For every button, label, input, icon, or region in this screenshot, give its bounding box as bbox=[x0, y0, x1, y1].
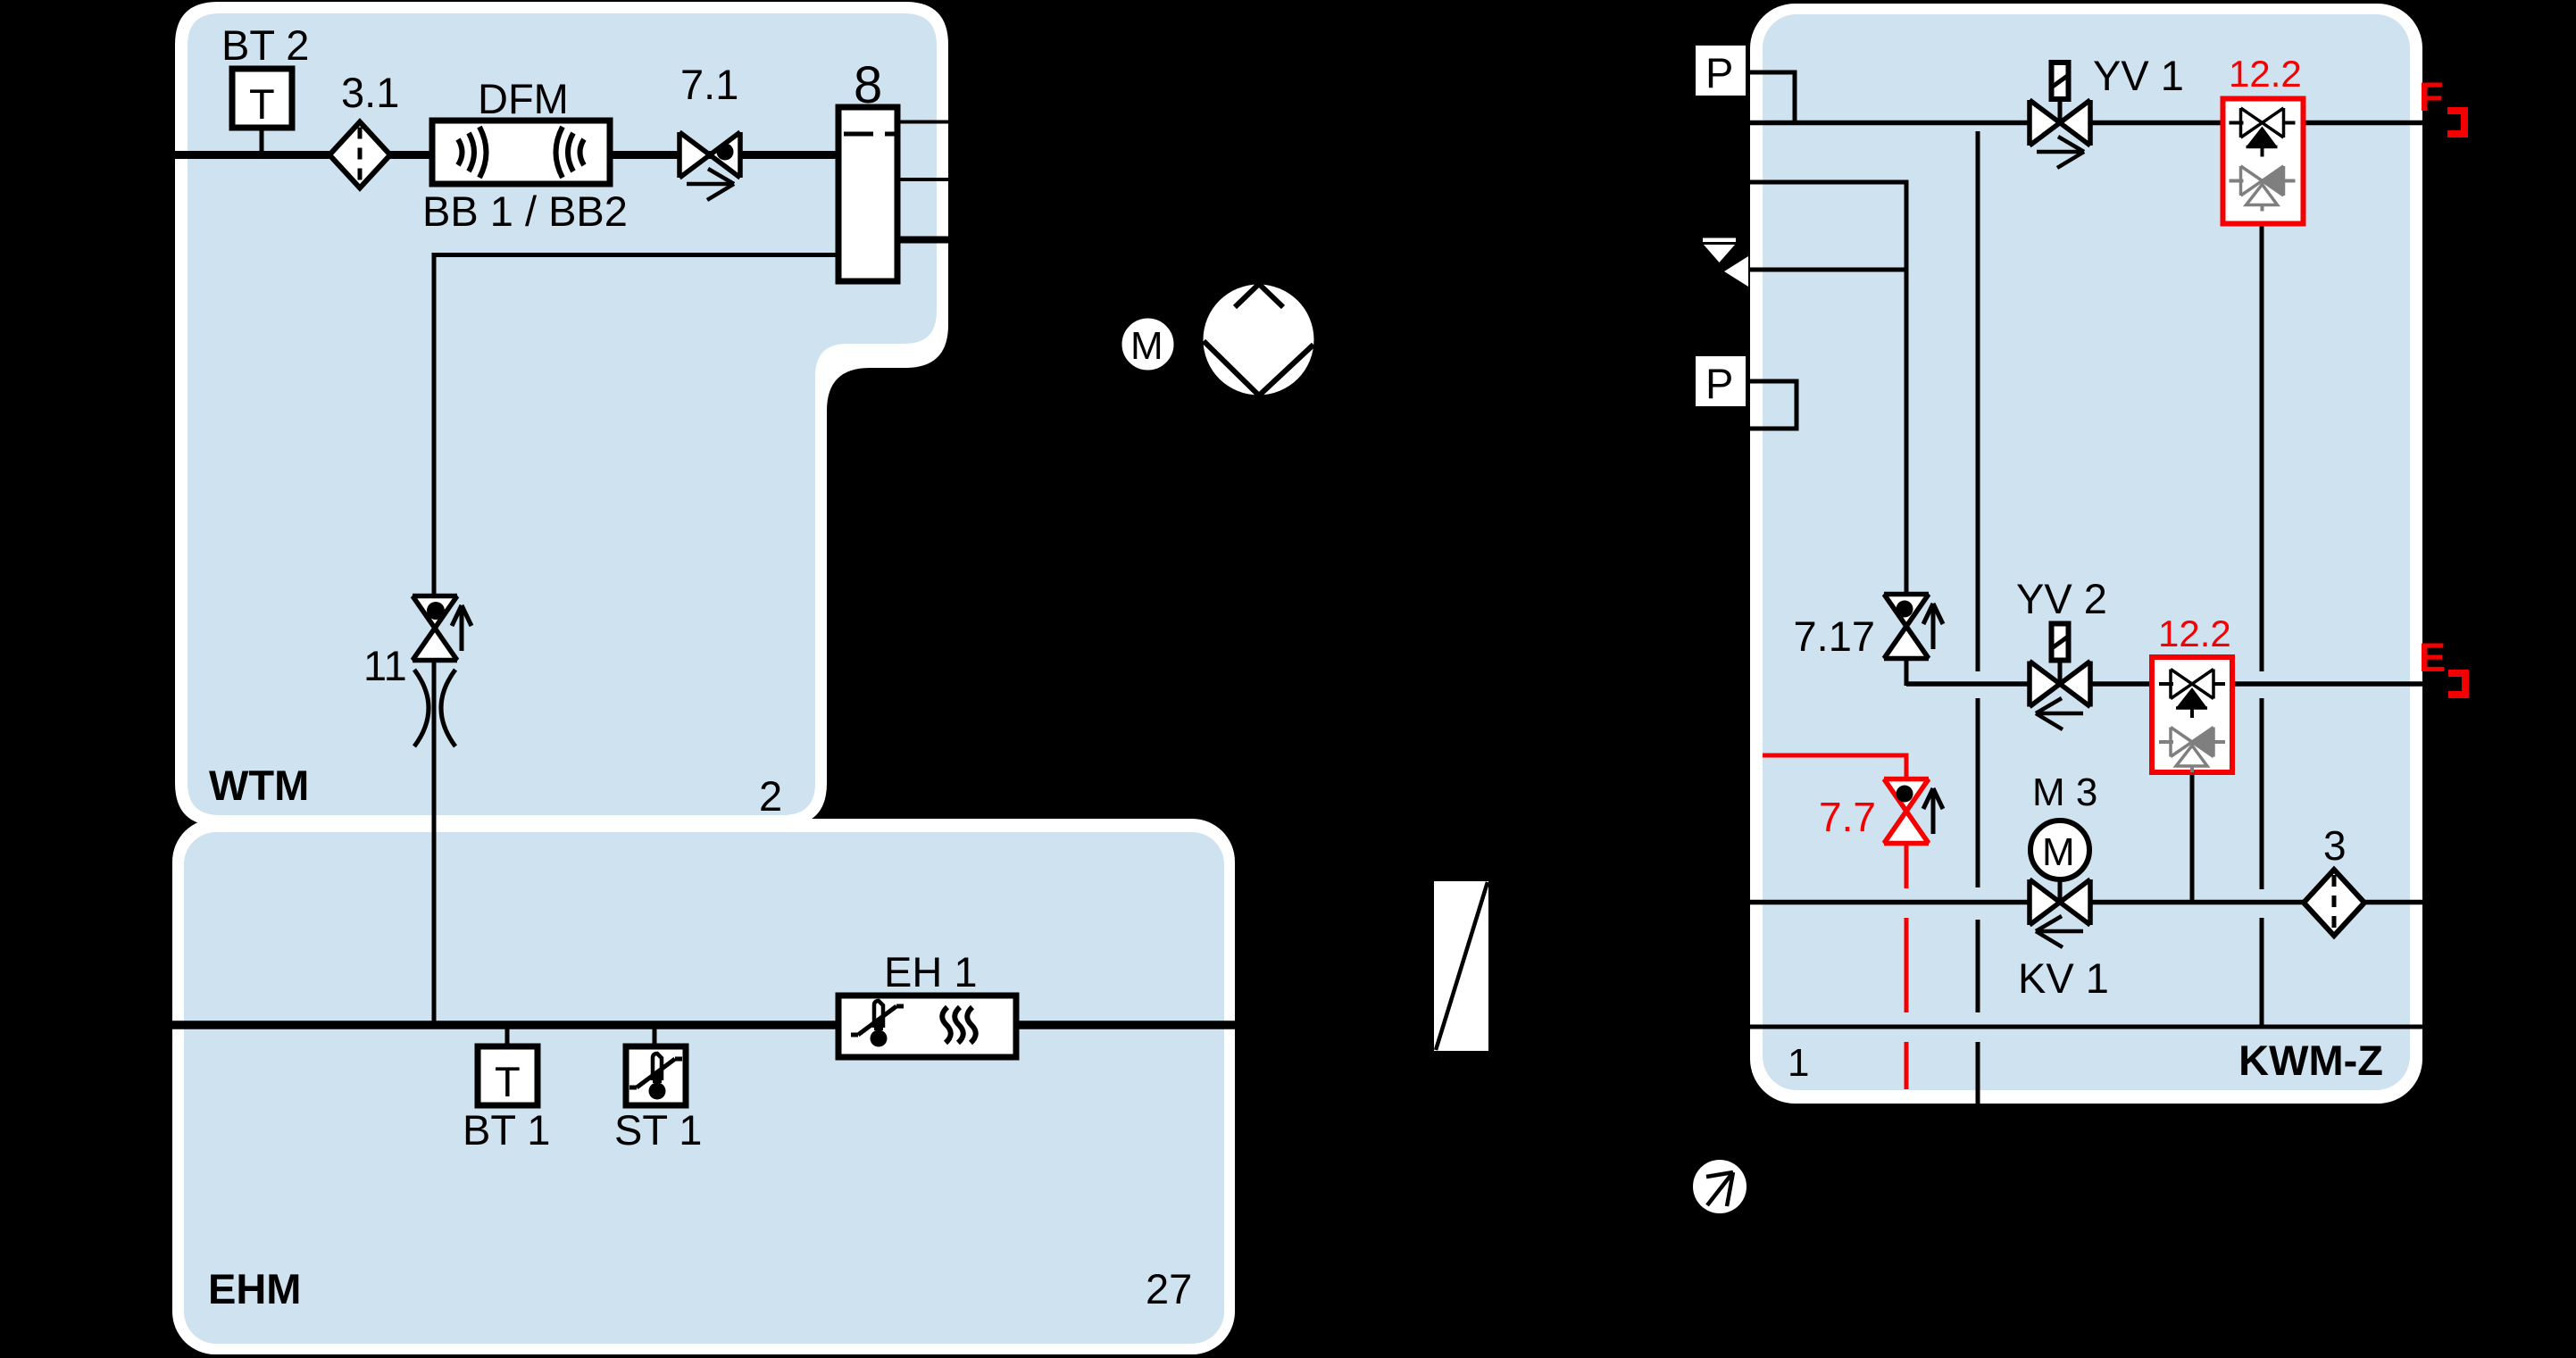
svg-text:1: 1 bbox=[1788, 1041, 1809, 1085]
svg-text:11: 11 bbox=[363, 642, 407, 689]
svg-text:KV 1: KV 1 bbox=[2018, 954, 2109, 1002]
svg-text:M: M bbox=[2042, 830, 2075, 874]
svg-text:T: T bbox=[495, 1058, 521, 1105]
svg-text:YV 1: YV 1 bbox=[2093, 52, 2184, 99]
svg-text:7.1: 7.1 bbox=[680, 61, 738, 108]
svg-text:M 3: M 3 bbox=[2032, 771, 2097, 814]
svg-text:YV 2: YV 2 bbox=[2016, 575, 2107, 622]
svg-text:7.7: 7.7 bbox=[1819, 794, 1876, 840]
svg-text:12.2: 12.2 bbox=[2158, 612, 2231, 654]
svg-text:2: 2 bbox=[759, 772, 782, 820]
svg-text:BB 1 / BB2: BB 1 / BB2 bbox=[422, 187, 628, 235]
svg-text:DFM: DFM bbox=[478, 75, 569, 122]
svg-text:E: E bbox=[2419, 635, 2446, 680]
svg-text:WTM: WTM bbox=[209, 762, 309, 809]
svg-text:P: P bbox=[1705, 49, 1733, 96]
svg-text:3.1: 3.1 bbox=[341, 69, 399, 116]
svg-text:M: M bbox=[1130, 324, 1163, 368]
svg-text:EH 1: EH 1 bbox=[884, 948, 978, 996]
svg-text:BT 2: BT 2 bbox=[221, 21, 309, 69]
svg-text:ST 1: ST 1 bbox=[614, 1106, 702, 1154]
svg-text:8: 8 bbox=[854, 56, 882, 114]
svg-text:BT 1: BT 1 bbox=[463, 1106, 550, 1154]
svg-text:3: 3 bbox=[2323, 822, 2347, 869]
svg-text:EHM: EHM bbox=[208, 1265, 301, 1312]
svg-text:KWM-Z: KWM-Z bbox=[2238, 1037, 2383, 1084]
svg-text:P: P bbox=[1705, 360, 1733, 407]
svg-text:12.2: 12.2 bbox=[2229, 53, 2302, 95]
svg-text:F: F bbox=[2419, 74, 2444, 120]
svg-text:7.17: 7.17 bbox=[1794, 612, 1875, 660]
svg-text:27: 27 bbox=[1146, 1265, 1192, 1312]
svg-text:T: T bbox=[249, 80, 275, 128]
